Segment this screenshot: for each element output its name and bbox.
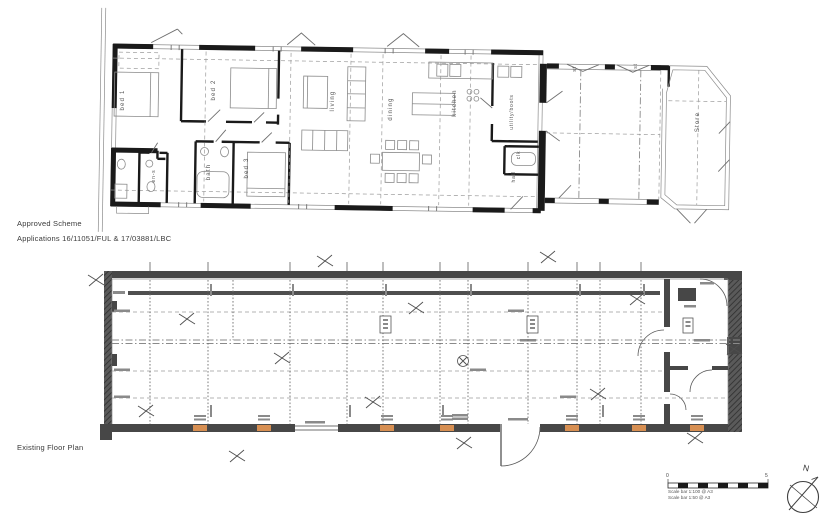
approved-scheme-title: Approved Scheme (17, 219, 82, 228)
room-label-st-2: st (633, 63, 639, 69)
room-label-store: Store (695, 112, 701, 132)
room-label-ensuite: en-s (151, 170, 157, 183)
room-label-utility: utility/boots (509, 94, 515, 129)
plan-linework (0, 0, 833, 520)
room-label-bed3: bed 3 (244, 157, 250, 178)
room-label-bed1: bed 1 (120, 89, 126, 110)
approved-scheme-plan (98, 8, 731, 242)
room-label-bed2: bed 2 (211, 79, 217, 100)
scale-bar-caption-2: Scale bar 1:50 @ A3 (668, 495, 710, 500)
drawing-sheet: Approved Scheme Applications 16/11051/FU… (0, 0, 833, 520)
existing-floor-plan-drawing (88, 251, 742, 466)
north-arrow-icon (788, 477, 819, 513)
room-label-bath: bath (206, 164, 212, 180)
scale-bar-caption-1: Scale bar 1:100 @ A3 (668, 489, 713, 494)
room-label-living: living (330, 91, 336, 112)
application-numbers: Applications 16/11051/FUL & 17/03881/LBC (17, 234, 171, 243)
room-label-kitchen: kitchen (452, 89, 458, 116)
room-label-st-1: st (572, 66, 578, 72)
scale-bar (668, 479, 768, 488)
room-label-clk: clk (516, 151, 522, 160)
room-label-dining: dining (388, 97, 394, 120)
existing-floor-plan-title: Existing Floor Plan (17, 443, 83, 452)
room-label-hall: hall (511, 172, 517, 183)
scale-bar-zero-label: 0 (666, 473, 669, 479)
scale-bar-five-label: 5 (765, 473, 768, 479)
